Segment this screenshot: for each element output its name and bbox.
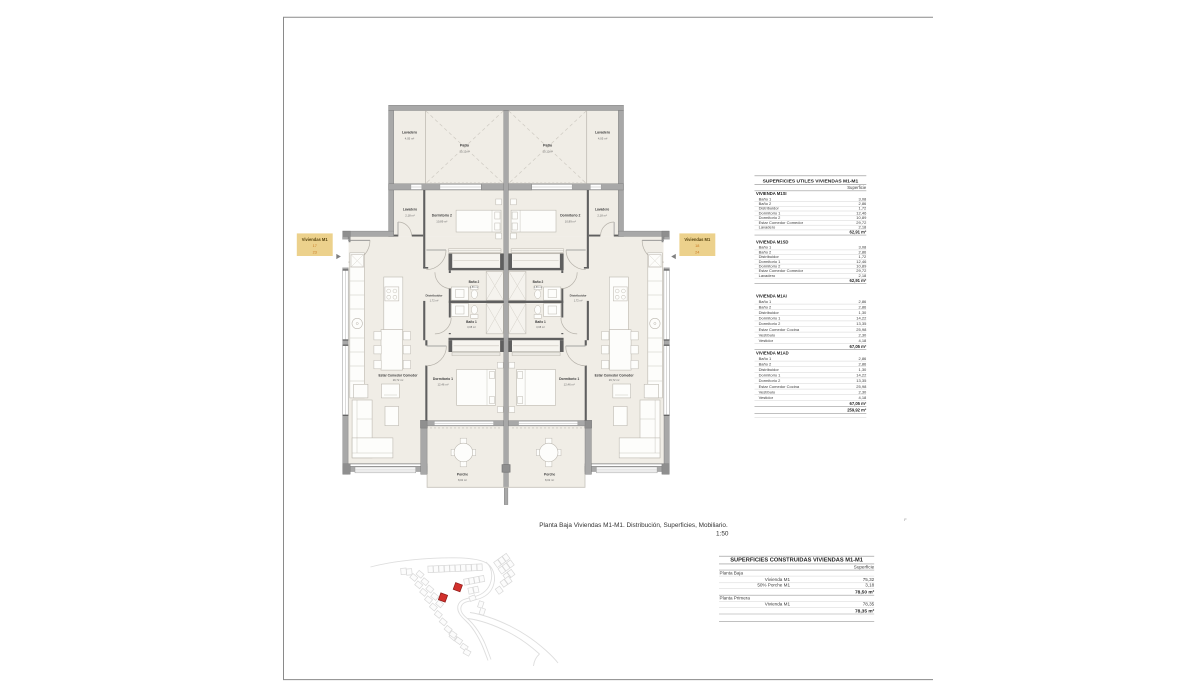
svg-text:2,30: 2,30 [859, 389, 868, 394]
svg-text:Distribuidor: Distribuidor [759, 367, 780, 372]
svg-text:12,46 m²: 12,46 m² [564, 383, 575, 387]
svg-text:Lavadero: Lavadero [402, 131, 417, 135]
svg-text:Dormitorio 2: Dormitorio 2 [432, 214, 452, 218]
svg-text:2,30: 2,30 [859, 332, 868, 337]
svg-text:17: 17 [313, 244, 317, 248]
svg-text:Viviendas M1: Viviendas M1 [684, 237, 711, 242]
svg-text:Superficie: Superficie [854, 564, 875, 569]
svg-text:3,18: 3,18 [865, 583, 874, 588]
svg-text:Dormitorio 1: Dormitorio 1 [759, 373, 782, 378]
svg-text:Patio: Patio [460, 144, 470, 148]
svg-text:Lavadero: Lavadero [759, 225, 776, 230]
svg-text:Viviendas M1: Viviendas M1 [302, 237, 329, 242]
svg-text:2,86 m²: 2,86 m² [534, 285, 543, 289]
svg-text:2,86: 2,86 [859, 299, 868, 304]
svg-text:Lavadero: Lavadero [759, 273, 776, 278]
svg-text:Dormitorio 1: Dormitorio 1 [433, 377, 453, 381]
svg-text:4,05 m²: 4,05 m² [405, 136, 415, 140]
svg-text:Estar Comedor Cocina: Estar Comedor Cocina [759, 384, 800, 389]
svg-text:13,35: 13,35 [856, 321, 867, 326]
svg-text:10,89 m²: 10,89 m² [436, 220, 447, 224]
svg-text:Vestíbulo: Vestíbulo [759, 332, 776, 337]
svg-text:Porche: Porche [544, 472, 555, 476]
svg-text:Vivienda M1: Vivienda M1 [765, 602, 791, 607]
svg-text:Vivienda M1: Vivienda M1 [765, 577, 791, 582]
svg-text:Distribuidor: Distribuidor [570, 294, 588, 298]
svg-text:3,08 m²: 3,08 m² [467, 325, 476, 329]
svg-text:14,22: 14,22 [856, 373, 867, 378]
svg-text:SUPERFICIES CONSTRUIDAS VIVIEN: SUPERFICIES CONSTRUIDAS VIVIENDAS M1-M1 [730, 558, 863, 564]
svg-text:4,18: 4,18 [859, 395, 868, 400]
svg-text:Baño 1: Baño 1 [466, 320, 477, 324]
svg-text:29,72 m²: 29,72 m² [609, 378, 620, 382]
svg-text:67,05 m²: 67,05 m² [850, 344, 867, 349]
svg-text:Estar Comedor Cocina: Estar Comedor Cocina [759, 327, 800, 332]
svg-text:2,18 m²: 2,18 m² [405, 213, 415, 217]
svg-text:8,02 m²: 8,02 m² [458, 478, 467, 482]
svg-text:2,86: 2,86 [859, 361, 868, 366]
svg-text:Lavadero: Lavadero [595, 208, 609, 212]
svg-text:2,18 m²: 2,18 m² [597, 213, 607, 217]
svg-text:50% Porche M1: 50% Porche M1 [757, 583, 790, 588]
svg-text:8,02 m²: 8,02 m² [545, 478, 554, 482]
svg-text:Porche: Porche [457, 472, 468, 476]
svg-text:1,72 m²: 1,72 m² [574, 299, 583, 303]
svg-text:2,86: 2,86 [859, 304, 868, 309]
svg-text:4,05 m²: 4,05 m² [598, 136, 608, 140]
svg-text:25,98: 25,98 [856, 384, 867, 389]
svg-text:10,12m²: 10,12m² [459, 149, 469, 153]
svg-text:Baño 2: Baño 2 [759, 304, 772, 309]
svg-text:14,22: 14,22 [856, 316, 867, 321]
svg-text:Patio: Patio [543, 144, 553, 148]
svg-text:3,08 m²: 3,08 m² [536, 325, 545, 329]
svg-text:13,35: 13,35 [856, 378, 867, 383]
svg-text:62,91 m²: 62,91 m² [850, 230, 867, 235]
svg-text:Dormitorio 1: Dormitorio 1 [559, 377, 579, 381]
svg-text:Superficie: Superficie [847, 185, 867, 190]
svg-text:Estar Comedor Comedor: Estar Comedor Comedor [378, 373, 418, 377]
svg-text:1,30: 1,30 [859, 310, 868, 315]
svg-text:Distribuidor: Distribuidor [426, 294, 444, 298]
svg-text:78,50 m²: 78,50 m² [855, 589, 875, 595]
svg-text:Lavadero: Lavadero [595, 131, 610, 135]
svg-text:F: F [904, 517, 907, 522]
svg-text:29,72 m²: 29,72 m² [393, 378, 404, 382]
svg-text:Dormitorio 2: Dormitorio 2 [759, 378, 782, 383]
svg-text:Dormitorio 2: Dormitorio 2 [560, 214, 580, 218]
svg-text:10,12m²: 10,12m² [542, 149, 552, 153]
svg-text:SUPERFICIES UTILES VIVIENDAS M: SUPERFICIES UTILES VIVIENDAS M1-M1 [763, 178, 859, 184]
svg-text:24: 24 [695, 251, 699, 255]
svg-text:2,86 m²: 2,86 m² [470, 285, 479, 289]
svg-text:1,72 m²: 1,72 m² [430, 299, 439, 303]
svg-text:4,18: 4,18 [859, 338, 868, 343]
svg-text:Vestíbulo: Vestíbulo [759, 389, 776, 394]
svg-text:Baño 2: Baño 2 [469, 280, 480, 284]
svg-text:Baño 2: Baño 2 [759, 361, 772, 366]
svg-text:Vestidor: Vestidor [759, 338, 774, 343]
svg-text:Lavadero: Lavadero [403, 208, 417, 212]
svg-text:Baño 1: Baño 1 [759, 356, 772, 361]
svg-text:18: 18 [695, 244, 699, 248]
svg-text:Baño 1: Baño 1 [759, 299, 772, 304]
svg-text:78,35 m²: 78,35 m² [855, 608, 875, 614]
svg-text:Baño 1: Baño 1 [535, 320, 546, 324]
svg-text:67,05 m²: 67,05 m² [850, 401, 867, 406]
svg-text:Dormitorio 1: Dormitorio 1 [759, 316, 782, 321]
svg-text:2,86: 2,86 [859, 356, 868, 361]
svg-text:Planta Baja Viviendas M1-M1. D: Planta Baja Viviendas M1-M1. Distribució… [539, 522, 728, 529]
svg-text:Estar Comedor Comedor: Estar Comedor Comedor [595, 373, 635, 377]
svg-text:Planta Baja: Planta Baja [720, 570, 744, 575]
svg-text:78,35: 78,35 [863, 602, 875, 607]
svg-text:1:50: 1:50 [716, 531, 729, 538]
svg-text:62,91 m²: 62,91 m² [850, 278, 867, 283]
svg-text:10,89 m²: 10,89 m² [565, 220, 576, 224]
svg-text:1,30: 1,30 [859, 367, 868, 372]
svg-text:Dormitorio 2: Dormitorio 2 [759, 321, 782, 326]
svg-text:Planta Primera: Planta Primera [720, 596, 751, 601]
svg-text:25,98: 25,98 [856, 327, 867, 332]
svg-text:Baño 2: Baño 2 [533, 280, 544, 284]
svg-text:23: 23 [313, 251, 317, 255]
svg-text:259,92 m²: 259,92 m² [847, 408, 867, 413]
svg-text:Vestidor: Vestidor [759, 395, 774, 400]
svg-text:75,32: 75,32 [863, 577, 875, 582]
svg-text:12,46 m²: 12,46 m² [437, 383, 448, 387]
svg-text:Distribuidor: Distribuidor [759, 310, 780, 315]
